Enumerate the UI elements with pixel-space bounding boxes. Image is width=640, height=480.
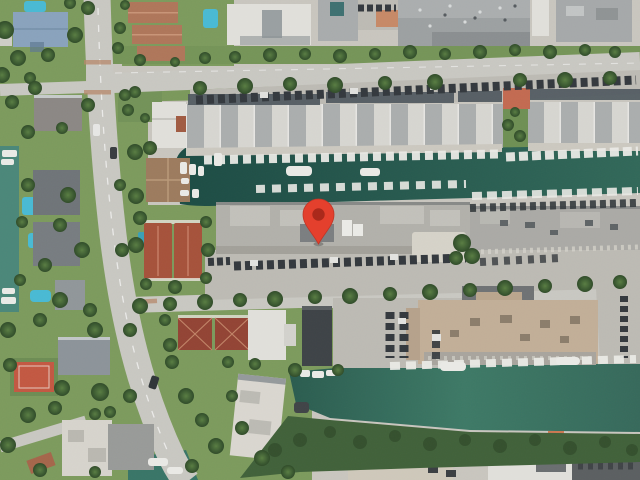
satellite-map[interactable] [0, 0, 640, 480]
satellite-map-viewport[interactable] [0, 0, 640, 480]
pin-core [312, 208, 324, 220]
